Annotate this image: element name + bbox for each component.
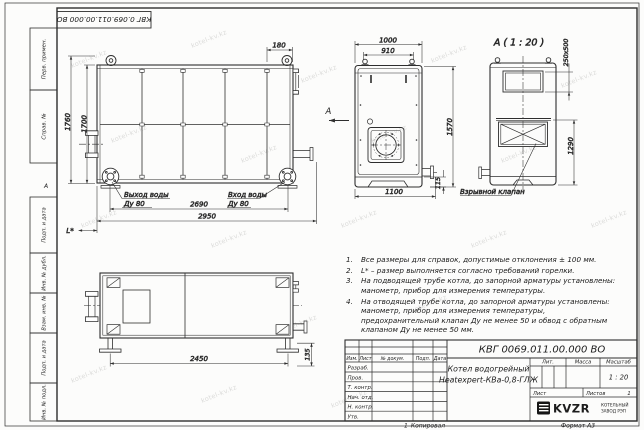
- title-block-text: КВГ 0069.011.00.000 ВО Котел водогрейный…: [346, 345, 631, 421]
- frame-col-label: Инв. № подл.: [42, 384, 48, 420]
- note-text: На отводящей трубе котла, до запорной ар…: [361, 297, 625, 336]
- dim-250x500: 250х500: [563, 39, 570, 67]
- plan-flange-left: [86, 292, 99, 322]
- skirt-notch: [368, 181, 408, 187]
- inlet-dn-label: Ду 80: [227, 200, 249, 208]
- tb-h-izm: Изм.: [346, 356, 357, 362]
- frame-col-label: Справ. №: [42, 113, 48, 140]
- technical-notes: 1. Все размеры для справок, допустимые о…: [346, 255, 625, 336]
- tb-h-date: Дата: [433, 356, 446, 362]
- outlet-label: Выход воды: [124, 191, 169, 199]
- dim-1290: 1290: [567, 137, 575, 155]
- frame-col-label: Подп. и дата: [42, 340, 48, 375]
- tb-sheets-value: 1: [627, 391, 631, 397]
- front-view: A: [325, 59, 438, 187]
- dim-2950: 2950: [198, 213, 216, 221]
- plan-bracket-right: [293, 282, 299, 293]
- explosion-valve-label: Взрывной клапан: [460, 188, 525, 196]
- side-view: [79, 56, 313, 189]
- tb-mass-label: Масса: [575, 360, 592, 366]
- frame-col-label: Взам. инв. №: [42, 295, 48, 330]
- note-item: 4. На отводящей трубе котла, до запорной…: [346, 297, 625, 336]
- sensor-boss: [367, 119, 372, 124]
- dim-1000: 1000: [379, 37, 397, 45]
- tb-row-tkontr: Т. контр.: [348, 385, 373, 391]
- water-outlet-flange: [102, 168, 119, 185]
- dim-180: 180: [272, 42, 286, 50]
- plan-view: [84, 273, 307, 352]
- plan-pipe-right: [293, 321, 307, 333]
- tb-name-line1: Котел водогрейный: [448, 365, 530, 374]
- zone-letter: А: [43, 183, 48, 190]
- tb-sheets-label: Листов: [585, 391, 605, 397]
- burner-plate: [368, 128, 404, 163]
- tb-row-utv: Утв.: [348, 414, 359, 420]
- drawing-canvas: КВГ 0.069.011.00.000 ВО Перв. примен. Сп…: [0, 0, 644, 430]
- note-number: 4.: [346, 297, 361, 336]
- plan-view-dims: 2450 135: [110, 343, 314, 366]
- note-text: Все размеры для справок, допустимые откл…: [361, 255, 625, 265]
- note-text: L* – размер выполняется согласно требова…: [361, 266, 625, 276]
- dim-115: 115: [434, 177, 442, 189]
- stamp-top: КВГ 0.069.011.00.000 ВО: [56, 15, 151, 24]
- side-flange-right-top: [293, 69, 299, 94]
- tb-h-list: Лист: [358, 356, 371, 362]
- dim-1570: 1570: [446, 118, 454, 136]
- front-pipe-right: [422, 166, 437, 179]
- view-a: [479, 56, 556, 191]
- tb-company-line1: КОТЕЛЬНЫЙ: [601, 403, 628, 408]
- tb-h-doc: № докум.: [380, 356, 405, 362]
- format-label: Формат А3: [561, 423, 595, 430]
- tb-company-line2: ЗАВОД РЭП: [601, 409, 626, 414]
- frame-col-label: Подп. и дата: [42, 207, 48, 242]
- tb-sheet-label: Лист: [532, 391, 547, 397]
- note-number: 2.: [346, 266, 361, 276]
- dim-135: 135: [304, 348, 312, 360]
- view-a-title: А ( 1 : 20 ): [493, 38, 544, 49]
- rear-pipe-left: [479, 167, 490, 179]
- tb-row-nachotd: Нач. отд.: [348, 395, 374, 401]
- frame-col-label: Перв. примен.: [42, 39, 48, 79]
- water-inlet-flange: [279, 168, 296, 185]
- tb-designation: КВГ 0069.011.00.000 ВО: [479, 345, 606, 356]
- outlet-dn-label: Ду 80: [123, 200, 145, 208]
- drawing-sheet: kotel-kv.kz kotel-kv.kz kotel-kv.kz kote…: [0, 0, 644, 430]
- dim-2690: 2690: [190, 201, 208, 209]
- kvzr-logo: [537, 402, 550, 415]
- inlet-label: Вход воды: [228, 191, 268, 199]
- note-item: 3. На подводящей трубе котла, до запорно…: [346, 276, 625, 295]
- copy-label: Копировал: [411, 423, 445, 430]
- side-view-dims: 1760 1700 180 2690 2950 L* Выход воды Ду…: [64, 42, 317, 236]
- lifting-lug: [362, 59, 416, 65]
- dim-1100: 1100: [385, 188, 403, 196]
- tb-scale-label: Масштаб: [606, 360, 631, 366]
- dim-910: 910: [381, 47, 395, 55]
- frame-col-label: Инв. № дубл.: [42, 255, 48, 291]
- note-item: 1. Все размеры для справок, допустимые о…: [346, 255, 625, 265]
- zone-number: 1: [404, 423, 408, 430]
- note-number: 3.: [346, 276, 361, 295]
- dim-l-star: L*: [66, 227, 74, 235]
- section-letter-a: A: [325, 107, 332, 117]
- tb-logo-text: KVZR: [553, 402, 590, 416]
- note-text: На подводящей трубе котла, до запорной а…: [361, 276, 625, 295]
- dim-2450: 2450: [190, 355, 208, 363]
- tb-h-sign: Подп.: [416, 356, 431, 362]
- note-number: 1.: [346, 255, 361, 265]
- dim-1760: 1760: [64, 113, 72, 131]
- tb-scale-value: 1 : 20: [609, 374, 629, 382]
- tb-lit-label: Лит.: [541, 360, 554, 366]
- feet: [100, 338, 299, 352]
- side-pipe-right: [293, 148, 313, 161]
- tb-row-nkontr: Н. контр.: [348, 405, 374, 411]
- tb-row-prov: Пров.: [348, 375, 364, 381]
- tb-row-razrab: Разраб.: [348, 366, 369, 372]
- note-item: 2. L* – размер выполняется согласно треб…: [346, 266, 625, 276]
- dim-1700: 1700: [81, 115, 89, 133]
- tb-name-line2: Heatexpert-КВа-0,8-ГЛЖ: [439, 376, 539, 385]
- lifting-lug: [105, 56, 293, 66]
- view-a-dims: А ( 1 : 20 ) 250х500 1290 Взрывной клапа…: [460, 38, 578, 196]
